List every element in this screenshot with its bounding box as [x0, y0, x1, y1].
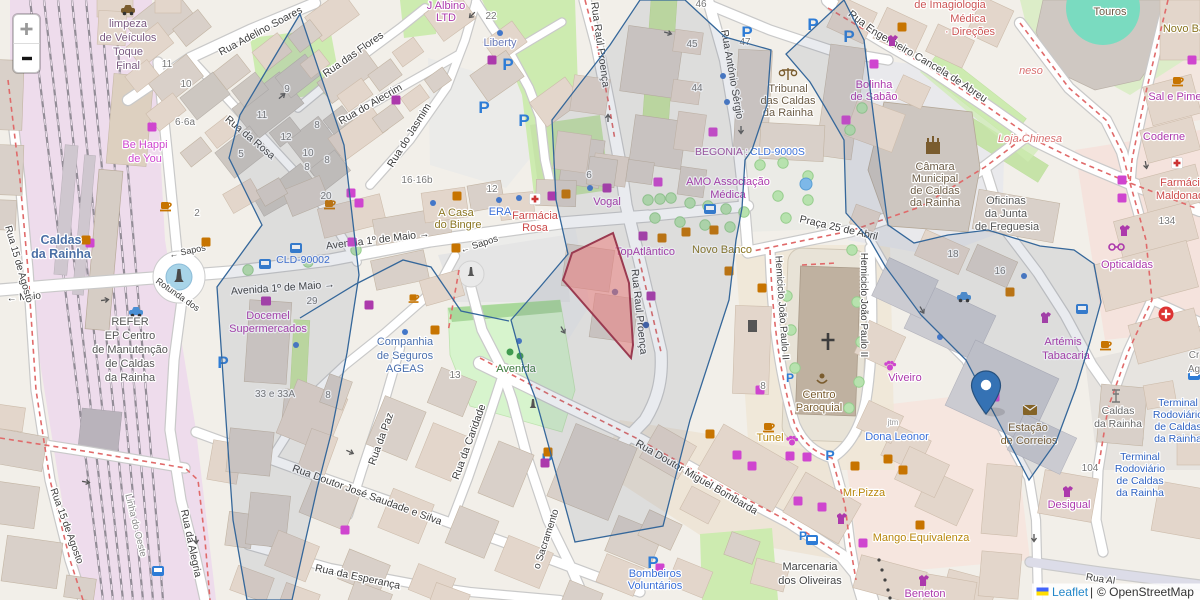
svg-text:Be Happi: Be Happi — [122, 139, 167, 151]
svg-text:10: 10 — [180, 79, 192, 90]
svg-text:Câmara: Câmara — [915, 161, 955, 173]
svg-text:Tribunal: Tribunal — [768, 83, 807, 95]
svg-text:AGEAS: AGEAS — [386, 363, 424, 375]
svg-text:Tunel: Tunel — [756, 432, 783, 444]
svg-text:11: 11 — [162, 59, 173, 70]
svg-text:Caldas: Caldas — [41, 233, 82, 247]
svg-text:Rodoviário: Rodoviário — [1115, 463, 1165, 475]
svg-text:Sal e Pimen: Sal e Pimen — [1148, 91, 1200, 103]
svg-text:8: 8 — [760, 381, 766, 392]
svg-text:da Junta: da Junta — [985, 208, 1028, 220]
svg-text:Ag: Ag — [1188, 364, 1200, 375]
svg-text:Farmáci: Farmáci — [1160, 177, 1200, 189]
svg-text:Mr.Pizza: Mr.Pizza — [843, 487, 886, 499]
svg-text:LTD: LTD — [436, 12, 456, 24]
svg-text:· Direções: · Direções — [945, 26, 996, 38]
svg-text:Coderne: Coderne — [1143, 131, 1185, 143]
svg-text:13: 13 — [449, 370, 461, 381]
svg-text:de Caldas: de Caldas — [1154, 421, 1200, 433]
svg-text:de Manutenção: de Manutenção — [92, 344, 168, 356]
svg-text:2: 2 — [194, 208, 200, 219]
svg-text:Hemiciclo João Paulo II: Hemiciclo João Paulo II — [858, 253, 869, 358]
svg-text:da Rainha: da Rainha — [910, 197, 961, 209]
svg-text:Beneton: Beneton — [905, 588, 946, 600]
svg-text:Médica: Médica — [950, 13, 986, 25]
svg-text:P: P — [786, 371, 794, 385]
svg-text:Voluntários: Voluntários — [628, 580, 683, 592]
svg-text:Toque: Toque — [113, 46, 143, 58]
svg-text:Cr: Cr — [1189, 350, 1200, 361]
svg-text:Terminal: Terminal — [1120, 451, 1160, 463]
svg-text:da Rainha: da Rainha — [763, 107, 814, 119]
svg-text:jtm: jtm — [887, 418, 899, 427]
svg-text:Marcenaria: Marcenaria — [782, 561, 838, 573]
svg-text:Bombeiros: Bombeiros — [629, 568, 682, 580]
svg-text:Touros: Touros — [1093, 6, 1127, 18]
svg-text:de You: de You — [128, 153, 162, 165]
svg-text:|: | — [1090, 585, 1093, 599]
svg-text:Municipal: Municipal — [912, 173, 958, 185]
svg-text:Oficinas: Oficinas — [986, 195, 1026, 207]
svg-text:Centro: Centro — [802, 389, 835, 401]
svg-text:A Casa: A Casa — [438, 207, 474, 219]
svg-text:ERA: ERA — [489, 206, 512, 218]
svg-text:do Bingre: do Bingre — [434, 219, 481, 231]
svg-text:limpeza: limpeza — [109, 18, 148, 30]
svg-text:REFER: REFER — [111, 316, 148, 328]
svg-text:Opticaldas: Opticaldas — [1101, 259, 1153, 271]
svg-text:Mango.Equivalenza: Mango.Equivalenza — [873, 532, 971, 544]
svg-text:Final: Final — [116, 60, 140, 72]
svg-text:P: P — [518, 111, 529, 130]
svg-text:Rosa: Rosa — [522, 222, 549, 234]
svg-text:P: P — [478, 98, 489, 117]
svg-text:de Seguros: de Seguros — [377, 350, 434, 362]
svg-text:104: 104 — [1082, 463, 1099, 474]
svg-text:de Veículos: de Veículos — [100, 32, 157, 44]
svg-text:6·6a: 6·6a — [175, 117, 195, 128]
svg-text:J Albino: J Albino — [427, 0, 466, 12]
svg-text:Leaflet: Leaflet — [1052, 585, 1089, 599]
svg-text:da Rainha: da Rainha — [105, 372, 156, 384]
svg-text:© OpenStreetMap: © OpenStreetMap — [1097, 585, 1194, 599]
svg-text:Liberty: Liberty — [483, 37, 517, 49]
svg-text:neso: neso — [1019, 65, 1043, 77]
svg-text:Dona Leonor: Dona Leonor — [865, 431, 929, 443]
svg-text:P: P — [799, 529, 807, 543]
svg-text:das Caldas: das Caldas — [760, 95, 816, 107]
svg-text:16·16b: 16·16b — [401, 175, 433, 186]
svg-text:P: P — [502, 55, 513, 74]
svg-text:de Imagiologia: de Imagiologia — [914, 0, 986, 11]
svg-text:CLD-9000S: CLD-9000S — [750, 146, 805, 158]
svg-text:de Caldas: de Caldas — [105, 358, 155, 370]
svg-text:Caldas: Caldas — [1102, 405, 1135, 417]
svg-text:22: 22 — [485, 11, 497, 22]
svg-text:da Rainha: da Rainha — [1094, 418, 1142, 430]
svg-text:134: 134 — [1159, 216, 1176, 227]
svg-text:EP Centro: EP Centro — [105, 330, 156, 342]
svg-text:12: 12 — [486, 184, 498, 195]
svg-text:P: P — [825, 447, 834, 463]
svg-text:da Rainha: da Rainha — [31, 247, 92, 261]
svg-text:dos Oliveiras: dos Oliveiras — [778, 575, 842, 587]
svg-text:da Rainha: da Rainha — [1116, 487, 1164, 499]
svg-text:Loja Chinesa: Loja Chinesa — [998, 133, 1062, 145]
svg-text:Novo Ban: Novo Ban — [1163, 23, 1200, 35]
svg-text:Terminal: Terminal — [1158, 397, 1198, 409]
svg-text:Farmácia: Farmácia — [512, 210, 559, 222]
svg-text:da Rainha: da Rainha — [1154, 433, 1200, 445]
svg-text:46: 46 — [695, 0, 707, 10]
svg-text:Companhia: Companhia — [377, 336, 434, 348]
svg-text:de Caldas: de Caldas — [910, 185, 960, 197]
svg-text:Rodoviário: Rodoviário — [1153, 409, 1200, 421]
svg-text:Paroquial: Paroquial — [796, 402, 842, 414]
svg-text:de Caldas: de Caldas — [1116, 475, 1163, 487]
svg-text:Desigual: Desigual — [1048, 499, 1091, 511]
svg-text:Viveiro: Viveiro — [888, 372, 921, 384]
svg-text:Maldonad: Maldonad — [1156, 190, 1200, 202]
